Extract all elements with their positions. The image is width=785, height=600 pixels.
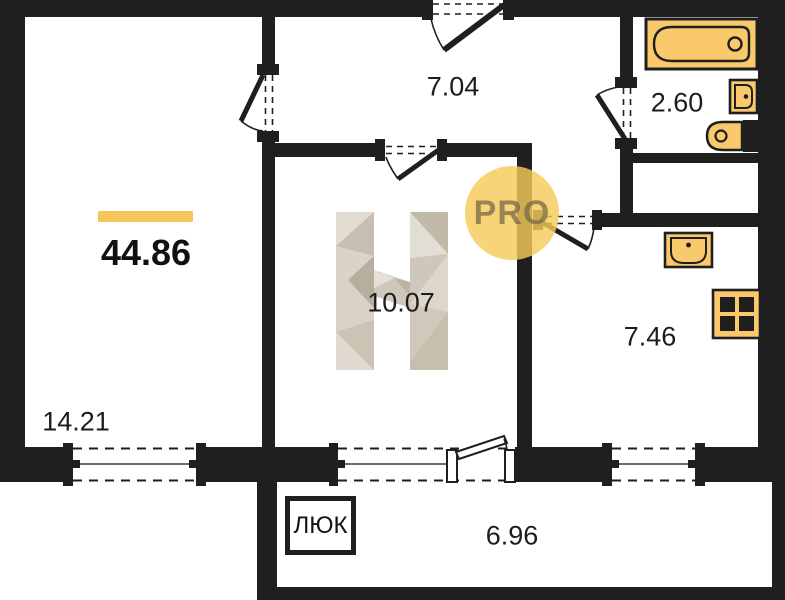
washbasin-icon (730, 80, 757, 113)
total-area-label: 44.86 (101, 232, 191, 274)
area-label-kitchen: 7.46 (624, 322, 677, 353)
entrance-door-symbol (431, 4, 504, 50)
living-room-door-symbol (241, 75, 273, 133)
pro-badge-label: PRO (474, 194, 551, 233)
window-bedroom (338, 449, 515, 483)
area-label-bathroom: 2.60 (651, 88, 704, 119)
area-label-living-room: 14.21 (42, 407, 110, 438)
window-living-room (73, 449, 196, 481)
toilet-icon (707, 120, 758, 152)
bathroom-door-symbol (597, 86, 631, 139)
area-label-balcony: 6.96 (486, 521, 539, 552)
area-label-corridor: 7.04 (427, 72, 480, 103)
stove-icon (713, 290, 760, 338)
bedroom-door-symbol (386, 147, 440, 180)
area-label-bedroom: 10.07 (367, 288, 435, 319)
hatch-label: ЛЮК (294, 512, 348, 540)
floor-plan: 44.86 14.21 7.04 2.60 10.07 7.46 6.96 ЛЮ… (0, 0, 785, 600)
bathtub-icon (646, 19, 757, 69)
pro-badge: PRO (465, 166, 559, 260)
kitchen-sink-icon (665, 233, 712, 267)
hatch-box: ЛЮК (285, 496, 356, 555)
window-kitchen (612, 449, 695, 481)
total-area-underline (98, 211, 193, 222)
